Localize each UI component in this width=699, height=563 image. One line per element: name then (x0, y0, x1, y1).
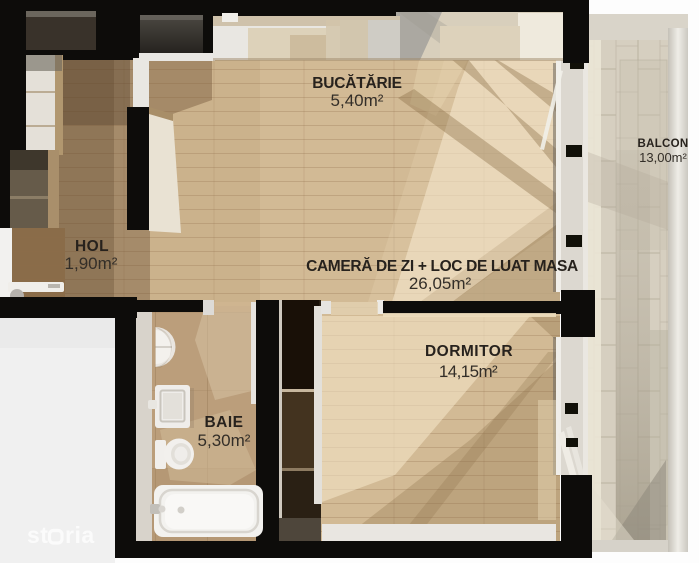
svg-text:HOL: HOL (75, 238, 109, 255)
svg-text:CAMERĂ DE ZI + LOC DE LUAT MAS: CAMERĂ DE ZI + LOC DE LUAT MASA (306, 258, 578, 275)
svg-text:14,15m²: 14,15m² (439, 362, 498, 381)
svg-text:BAIE: BAIE (204, 414, 243, 431)
svg-text:1,90m²: 1,90m² (65, 254, 118, 273)
svg-text:DORMITOR: DORMITOR (425, 343, 513, 360)
svg-text:BUCĂTĂRIE: BUCĂTĂRIE (312, 75, 401, 92)
svg-text:5,40m²: 5,40m² (331, 91, 384, 110)
svg-text:5,30m²: 5,30m² (198, 431, 251, 450)
svg-text:13,00m²: 13,00m² (639, 150, 687, 165)
svg-text:26,05m²: 26,05m² (409, 274, 472, 293)
svg-text:ria: ria (65, 522, 95, 548)
svg-text:st: st (27, 522, 48, 548)
svg-text:BALCON: BALCON (638, 138, 689, 150)
